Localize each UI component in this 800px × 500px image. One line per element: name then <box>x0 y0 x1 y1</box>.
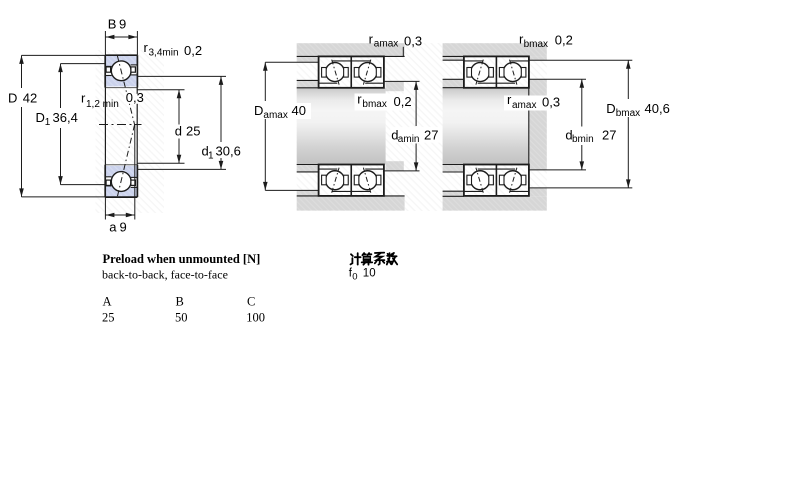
svg-text:amin: amin <box>398 134 420 145</box>
svg-text:30,6: 30,6 <box>216 144 241 159</box>
svg-text:amax: amax <box>512 100 536 111</box>
svg-text:B: B <box>108 17 117 32</box>
svg-text:0,3: 0,3 <box>542 94 560 109</box>
svg-text:0,3: 0,3 <box>404 34 422 49</box>
svg-text:100: 100 <box>246 310 265 324</box>
svg-text:25: 25 <box>102 310 115 324</box>
svg-text:D: D <box>8 91 17 106</box>
svg-text:27: 27 <box>424 128 438 143</box>
svg-text:27: 27 <box>602 128 616 143</box>
svg-text:50: 50 <box>175 310 188 324</box>
svg-text:amax: amax <box>374 38 398 49</box>
svg-text:10: 10 <box>363 267 376 279</box>
svg-text:bmin: bmin <box>572 134 594 145</box>
svg-text:9: 9 <box>119 17 126 32</box>
svg-text:0,3: 0,3 <box>126 90 144 105</box>
svg-text:42: 42 <box>23 91 37 106</box>
svg-text:amax: amax <box>263 110 287 121</box>
svg-text:d: d <box>175 124 182 139</box>
svg-text:9: 9 <box>120 220 127 235</box>
svg-text:0,2: 0,2 <box>555 33 573 48</box>
svg-text:3,4min: 3,4min <box>149 48 179 59</box>
svg-text:A: A <box>103 294 112 308</box>
svg-text:25: 25 <box>186 124 200 139</box>
svg-text:a: a <box>109 220 117 235</box>
svg-text:0: 0 <box>352 272 357 283</box>
svg-text:D: D <box>606 101 615 116</box>
svg-text:bmax: bmax <box>524 39 548 50</box>
svg-text:bmax: bmax <box>616 108 640 119</box>
svg-text:D: D <box>36 110 45 125</box>
svg-text:D: D <box>254 103 263 118</box>
svg-text:1: 1 <box>45 117 51 128</box>
svg-text:40: 40 <box>292 103 306 118</box>
svg-text:Preload when unmounted [N]: Preload when unmounted [N] <box>103 252 261 266</box>
svg-text:C: C <box>247 294 255 308</box>
svg-text:0,2: 0,2 <box>184 43 202 58</box>
svg-text:1,2 min: 1,2 min <box>86 99 119 110</box>
svg-text:bmax: bmax <box>362 99 386 110</box>
svg-text:B: B <box>176 294 184 308</box>
svg-text:back-to-back, face-to-face: back-to-back, face-to-face <box>102 267 228 281</box>
svg-text:0,2: 0,2 <box>394 94 412 109</box>
svg-text:36,4: 36,4 <box>53 110 78 125</box>
svg-text:40,6: 40,6 <box>645 101 670 116</box>
svg-text:1: 1 <box>208 151 214 162</box>
